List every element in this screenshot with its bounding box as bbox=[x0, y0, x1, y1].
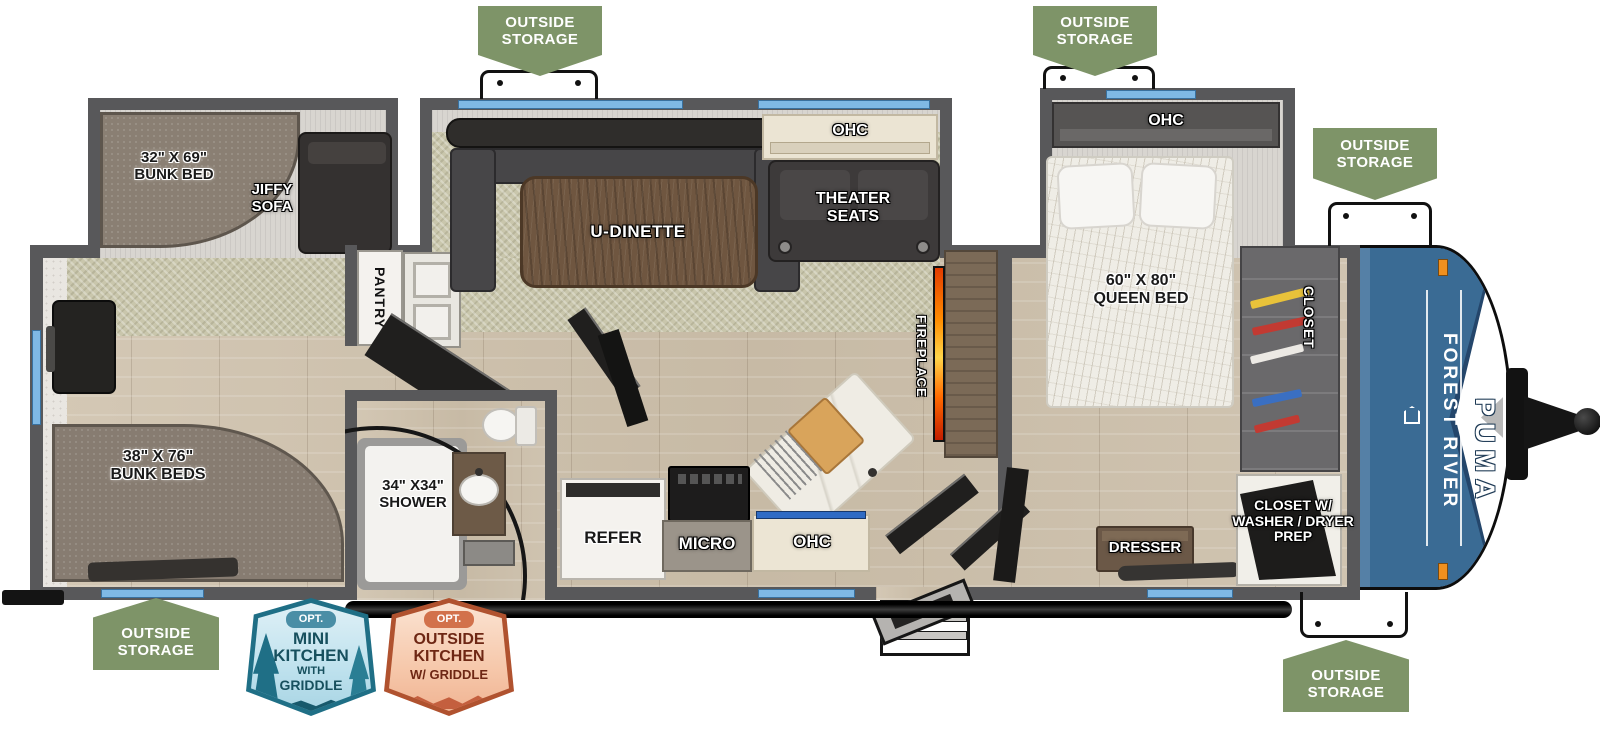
latch-dot bbox=[1132, 75, 1138, 81]
jiffy-line2: SOFA bbox=[252, 198, 293, 215]
queen-name: QUEEN BED bbox=[1093, 290, 1188, 307]
window-bedroom-slide bbox=[1106, 90, 1196, 99]
grass-silhouette bbox=[393, 691, 505, 709]
cabinet-front-edge bbox=[770, 142, 930, 154]
outside-storage-badge-top-left: OUTSIDE STORAGE bbox=[478, 6, 602, 76]
wall-front bbox=[1347, 245, 1360, 600]
badge-line1: OUTSIDE bbox=[1313, 137, 1437, 154]
cooktop bbox=[668, 466, 750, 522]
opt-tag: OPT. bbox=[424, 611, 474, 628]
closet-label: CLOSET bbox=[1294, 254, 1316, 380]
badge-line2: STORAGE bbox=[1283, 684, 1409, 701]
latch-dot bbox=[575, 80, 581, 86]
mini-line1: MINI bbox=[251, 630, 371, 647]
latch-dot bbox=[1315, 621, 1321, 627]
storage-door-outline-front bbox=[1328, 202, 1432, 246]
outside-line3: W/ GRIDDLE bbox=[389, 668, 509, 681]
cupholder bbox=[778, 240, 792, 254]
tv bbox=[52, 300, 116, 394]
window-rear-wall bbox=[32, 330, 41, 425]
latch-dot bbox=[1060, 75, 1066, 81]
queen-dim: 60" X 80" bbox=[1106, 272, 1176, 289]
outside-line1: OUTSIDE bbox=[389, 632, 509, 648]
fridge-top bbox=[566, 483, 660, 497]
bathroom-wall-top bbox=[345, 390, 557, 401]
jiffy-sofa bbox=[298, 132, 392, 254]
brand-rule-right bbox=[1460, 290, 1462, 546]
burners bbox=[678, 474, 742, 484]
badge-line2: STORAGE bbox=[1313, 154, 1437, 171]
closet-unit bbox=[1240, 246, 1340, 472]
storage-door-outline-bottom-front bbox=[1300, 592, 1408, 638]
window-dinette bbox=[458, 100, 683, 109]
kitchen-ohc-label: OHC bbox=[762, 532, 862, 551]
toilet-tank bbox=[515, 406, 537, 446]
bunk-slide-dim: 32" X 69" bbox=[141, 149, 207, 166]
badge-line1: OUTSIDE bbox=[478, 14, 602, 31]
entertainment-center bbox=[944, 250, 998, 458]
bath-sink bbox=[459, 474, 499, 506]
latch-dot bbox=[1387, 621, 1393, 627]
window-kitchen bbox=[758, 589, 855, 598]
mini-kitchen-badge: OPT. MINI KITCHEN WITH GRIDDLE bbox=[246, 598, 376, 716]
dresser-label: DRESSER bbox=[1098, 540, 1192, 557]
bunk-beds-name: BUNK BEDS bbox=[110, 466, 205, 483]
wd-line3: PREP bbox=[1274, 528, 1312, 544]
window-bedroom-bottom bbox=[1147, 589, 1233, 598]
jiffy-sofa-label: JIFFY SOFA bbox=[232, 182, 312, 216]
latch-dot bbox=[1343, 213, 1349, 219]
micro-label: MICRO bbox=[664, 534, 750, 553]
outside-storage-badge-bottom-front: OUTSIDE STORAGE bbox=[1283, 640, 1409, 712]
wd-line2: WASHER / DRYER bbox=[1232, 513, 1354, 529]
dinette-label: U-DINETTE bbox=[528, 222, 748, 241]
badge-line1: OUTSIDE bbox=[93, 625, 219, 642]
bath-step bbox=[463, 540, 515, 566]
window-theater bbox=[758, 100, 930, 109]
bunk-beds-label: 38" X 76" BUNK BEDS bbox=[78, 448, 238, 484]
hitch-coupler bbox=[1574, 408, 1600, 435]
cabinet-front-edge bbox=[1060, 129, 1272, 141]
brand-model: PUMA bbox=[1464, 352, 1500, 552]
front-cap: FOREST RIVER PUMA bbox=[1360, 245, 1512, 590]
latch-dot bbox=[1411, 213, 1417, 219]
washer-dryer-label: CLOSET W/ WASHER / DRYER PREP bbox=[1218, 498, 1368, 545]
cabinet-door-panel bbox=[413, 262, 451, 298]
wd-line1: CLOSET W/ bbox=[1254, 497, 1332, 513]
mini-line2: KITCHEN bbox=[251, 647, 371, 664]
opt-tag: OPT. bbox=[286, 611, 336, 628]
shower-dim: 34" X34" bbox=[382, 477, 444, 494]
brand-make: FOREST RIVER bbox=[1428, 276, 1460, 566]
badge-line1: OUTSIDE bbox=[1033, 14, 1157, 31]
mini-kitchen-badge-face: OPT. MINI KITCHEN WITH GRIDDLE bbox=[251, 603, 371, 711]
bunk-beds-dim: 38" X 76" bbox=[123, 448, 193, 465]
bathroom-wall-right bbox=[545, 390, 557, 600]
bunk-slide-name: BUNK BED bbox=[134, 166, 213, 183]
badge-line1: OUTSIDE bbox=[1283, 667, 1409, 684]
shower-label: 34" X34" SHOWER bbox=[363, 478, 463, 512]
fireplace-strip bbox=[933, 266, 945, 442]
pillow bbox=[1056, 162, 1135, 230]
wall-pantry bbox=[345, 245, 357, 346]
outside-storage-badge-bottom-left: OUTSIDE STORAGE bbox=[93, 598, 219, 670]
jiffy-line1: JIFFY bbox=[252, 181, 293, 198]
badge-line2: STORAGE bbox=[478, 31, 602, 48]
refer-label: REFER bbox=[562, 528, 664, 547]
closet-clothes-red2 bbox=[1254, 415, 1301, 434]
latch-dot bbox=[497, 80, 503, 86]
mini-line3: WITH bbox=[251, 666, 371, 677]
bathroom: 34" X34" SHOWER bbox=[345, 390, 557, 600]
dinette-bench-left bbox=[450, 148, 496, 292]
rear-bumper bbox=[2, 590, 64, 605]
clearance-light-top bbox=[1438, 259, 1448, 276]
badge-line2: STORAGE bbox=[1033, 31, 1157, 48]
outside-line2: KITCHEN bbox=[389, 649, 509, 665]
queen-bed-label: 60" X 80" QUEEN BED bbox=[1078, 272, 1204, 308]
sofa-backrest bbox=[308, 142, 386, 164]
theater-line2: SEATS bbox=[827, 208, 879, 225]
bath-faucet bbox=[475, 468, 483, 476]
theater-label: THEATER SEATS bbox=[778, 190, 928, 226]
outside-storage-badge-front: OUTSIDE STORAGE bbox=[1313, 128, 1437, 200]
tv-mount-arm bbox=[46, 326, 55, 372]
theater-line1: THEATER bbox=[816, 190, 890, 207]
kitchen-ohc-accent bbox=[756, 511, 866, 519]
bunk-slide-label: 32" X 69" BUNK BED bbox=[104, 150, 244, 184]
fireplace-label: FIREPLACE bbox=[906, 296, 928, 416]
badge-line2: STORAGE bbox=[93, 642, 219, 659]
floorplan-diagram: 38" X 76" BUNK BEDS 32" X 69" BUNK BED J… bbox=[0, 0, 1600, 740]
pillow bbox=[1138, 162, 1217, 230]
forest-silhouette bbox=[261, 697, 361, 711]
closet-clothes-blue bbox=[1252, 389, 1303, 407]
cap-left-band bbox=[1360, 248, 1370, 587]
cupholder bbox=[916, 240, 930, 254]
bedroom-ohc-label: OHC bbox=[1108, 112, 1224, 130]
theater-ohc-label: OHC bbox=[800, 122, 900, 140]
window-rear-bottom bbox=[101, 589, 204, 598]
outside-kitchen-badge-face: OPT. OUTSIDE KITCHEN W/ GRIDDLE bbox=[389, 603, 509, 711]
mini-line4: GRIDDLE bbox=[251, 678, 371, 692]
kitchen-faucet bbox=[868, 468, 877, 477]
outside-kitchen-badge: OPT. OUTSIDE KITCHEN W/ GRIDDLE bbox=[384, 598, 514, 716]
shower-name: SHOWER bbox=[379, 494, 447, 511]
pantry-label: PANTRY bbox=[372, 267, 388, 329]
